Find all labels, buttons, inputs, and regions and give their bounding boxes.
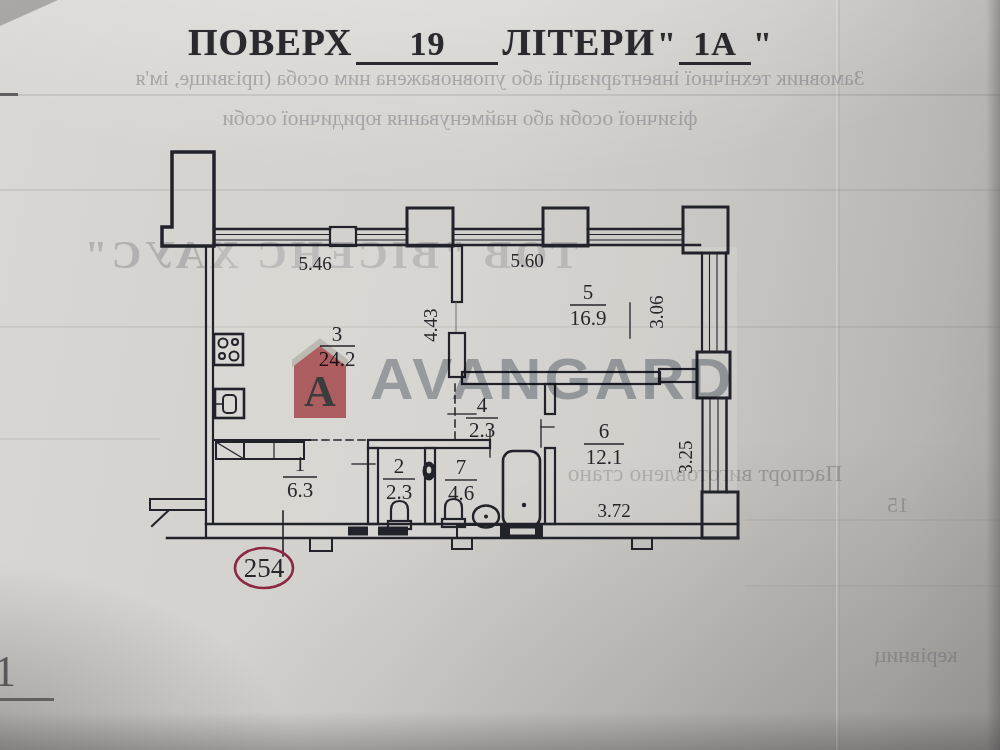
svg-text:2: 2 bbox=[394, 454, 405, 478]
wall-pillar bbox=[543, 208, 588, 246]
dimension-top-right: 5.60 bbox=[510, 250, 543, 271]
avangard-logo-icon: A bbox=[292, 334, 348, 422]
wall-pillar-top-left bbox=[162, 152, 214, 246]
wall-pillar bbox=[407, 208, 453, 246]
svg-text:5: 5 bbox=[583, 280, 594, 304]
window-band-top-middle bbox=[453, 229, 543, 240]
watermark: A AVANGARD bbox=[292, 334, 721, 422]
wall-fixture-icon bbox=[423, 462, 436, 481]
svg-text:6.3: 6.3 bbox=[287, 478, 313, 502]
svg-text:12.1: 12.1 bbox=[586, 445, 623, 469]
svg-text:2.3: 2.3 bbox=[386, 480, 412, 504]
window-band-top-left bbox=[214, 227, 407, 246]
window-band-top-right bbox=[588, 229, 683, 240]
svg-text:7: 7 bbox=[456, 455, 467, 479]
bottom-wall-notch bbox=[310, 538, 332, 551]
svg-text:6: 6 bbox=[599, 419, 610, 443]
logo-letter: A bbox=[304, 367, 336, 416]
dimension-right-upper: 3.06 bbox=[646, 295, 667, 328]
apartment-number: 254 bbox=[244, 553, 285, 583]
bottom-wall-notch bbox=[632, 538, 652, 549]
window-mullion bbox=[330, 227, 356, 246]
dimension-top-left: 5.46 bbox=[298, 253, 331, 274]
dimension-right-lower: 3.25 bbox=[675, 440, 696, 473]
svg-text:16.9: 16.9 bbox=[570, 306, 607, 330]
watermark-brand-text: AVANGARD bbox=[370, 345, 735, 412]
svg-text:1: 1 bbox=[295, 452, 306, 476]
apartment-number-badge: 254 bbox=[235, 548, 293, 588]
dimension-bottom: 3.72 bbox=[597, 500, 630, 521]
bottom-wall-notch bbox=[452, 538, 472, 549]
svg-text:4.6: 4.6 bbox=[448, 481, 474, 505]
entrance-door bbox=[150, 499, 206, 526]
scanned-floor-plan-page: Замовник технічної інвентаризації або уп… bbox=[0, 0, 1000, 750]
